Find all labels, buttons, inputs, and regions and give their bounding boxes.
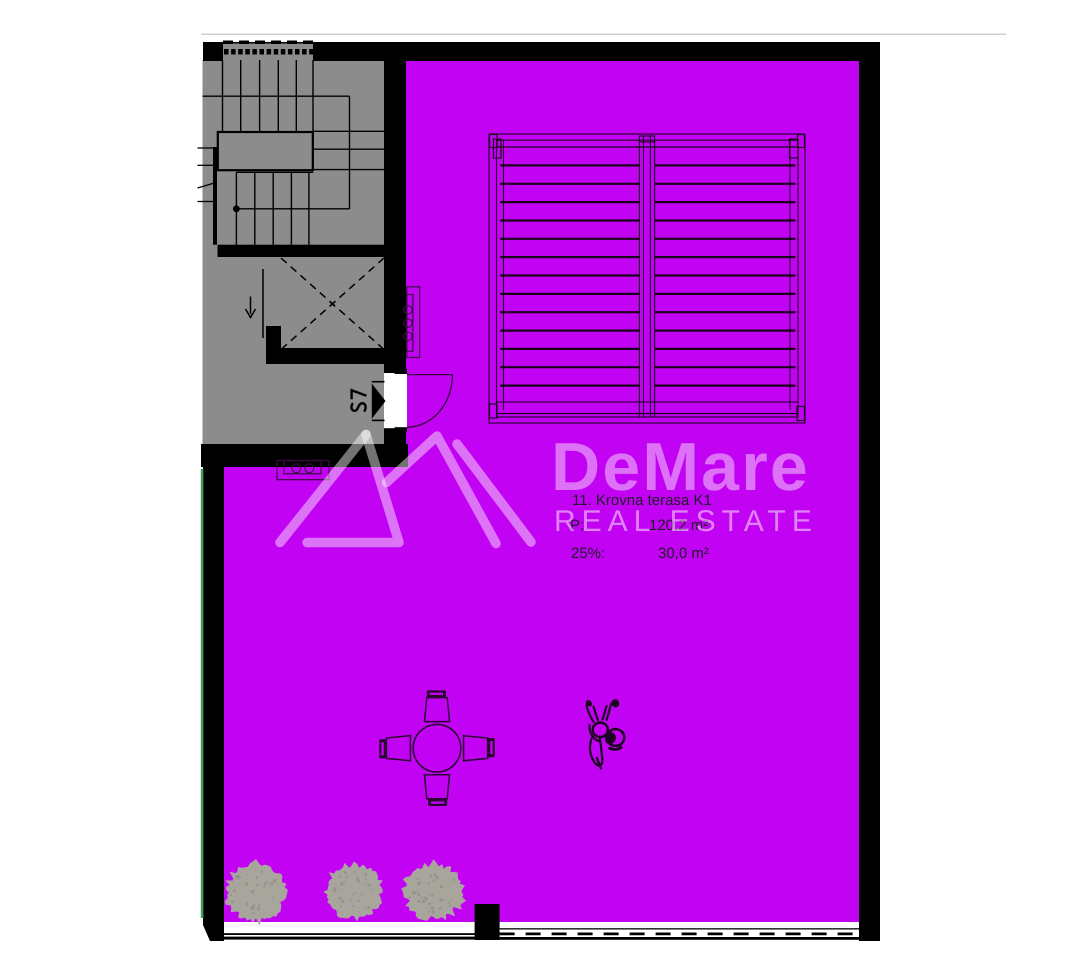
svg-text:25%:: 25%:	[571, 545, 605, 562]
svg-text:DeMare: DeMare	[551, 429, 810, 505]
svg-text:REAL ESTATE: REAL ESTATE	[554, 505, 818, 538]
svg-text:30,0 m²: 30,0 m²	[658, 545, 709, 562]
